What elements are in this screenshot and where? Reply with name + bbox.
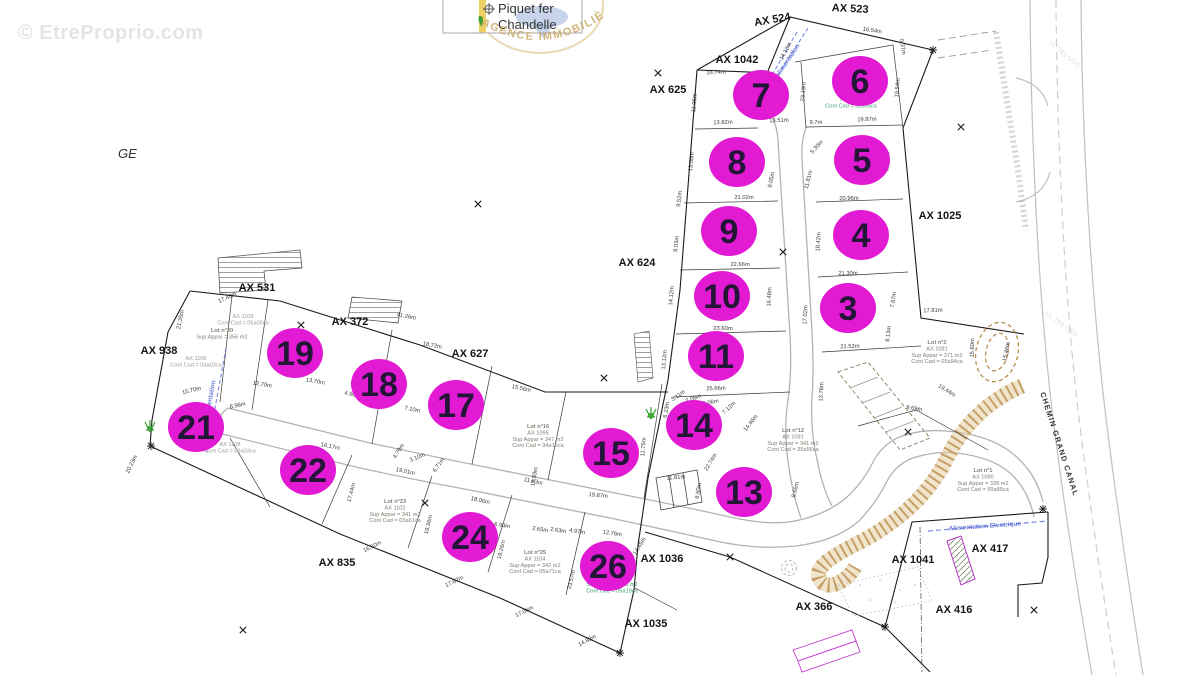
lot-marker-8: 8 bbox=[709, 137, 765, 187]
measurement-label: 19.36m bbox=[424, 514, 435, 534]
utility-note: Alimentation Electrique bbox=[948, 520, 1021, 532]
measurement-label: 22.66m bbox=[730, 262, 750, 268]
lot-marker-15: 15 bbox=[583, 428, 639, 478]
measurement-label: 14.46m bbox=[743, 414, 760, 433]
measurement-label: 12.76m bbox=[602, 530, 622, 539]
lot-number: 15 bbox=[592, 435, 630, 473]
parcel-label: AX 417 bbox=[972, 543, 1009, 555]
measurement-label: 11.81m bbox=[666, 474, 685, 481]
lot-marker-19: 19 bbox=[267, 328, 323, 378]
star-mark bbox=[881, 623, 889, 631]
measurement-label: 14.12m bbox=[668, 286, 676, 306]
lot-number: 8 bbox=[728, 144, 747, 182]
lot-number: 11 bbox=[698, 338, 734, 376]
measurement-label: 4.97m bbox=[569, 528, 586, 536]
measurement-label: 8.05m bbox=[767, 171, 776, 188]
measurement-label: 8.03m bbox=[673, 235, 681, 252]
measurement-label: 9.7m bbox=[809, 120, 822, 126]
x-mark bbox=[601, 375, 607, 381]
measurement-label: 5.30m bbox=[810, 139, 825, 155]
lot-number: 24 bbox=[451, 519, 489, 557]
parcel-label: AX 1042 bbox=[716, 54, 759, 66]
measurement-label: 13.05m bbox=[688, 152, 696, 172]
lot-marker-6: 6 bbox=[832, 56, 888, 106]
measurement-label: 20.23m bbox=[125, 454, 139, 474]
lot-number: 17 bbox=[437, 387, 475, 425]
measurement-label: 41.26m bbox=[396, 312, 416, 322]
star-mark bbox=[147, 442, 155, 450]
lot-info-block: Lot n°12AX 1091Sup Appar = 341 m2Cont Ca… bbox=[767, 428, 819, 453]
measurement-label: 17.81m bbox=[923, 308, 943, 315]
lot-number: 13 bbox=[725, 474, 763, 512]
lot-number: 6 bbox=[851, 63, 870, 101]
measurement-label: 23.57m bbox=[567, 569, 578, 589]
measurement-label: 17.44m bbox=[347, 482, 358, 502]
star-mark bbox=[1039, 505, 1047, 513]
measurement-label: 8.60m bbox=[695, 482, 704, 499]
measurement-label: 13.82m bbox=[713, 120, 733, 127]
measurement-label: 8.96m bbox=[229, 401, 246, 410]
lot-number: 22 bbox=[289, 452, 327, 490]
parcel-label: AX 372 bbox=[332, 316, 369, 328]
star-mark bbox=[929, 46, 937, 54]
strip-hatched bbox=[634, 331, 653, 382]
faint-label: VL 789 USS bbox=[1047, 40, 1082, 69]
measurement-label: 19.87m bbox=[588, 492, 608, 500]
lot-marker-10: 10 bbox=[694, 271, 750, 321]
lot-number: 18 bbox=[360, 366, 398, 404]
region-label: GE bbox=[118, 146, 137, 161]
road-name-label: CHEMIN GRAND CANAL bbox=[1038, 391, 1080, 498]
measurement-label: 15.60m bbox=[970, 338, 977, 358]
measurement-label: 23.19m bbox=[800, 82, 808, 102]
measurement-label: 25.66m bbox=[706, 386, 726, 393]
measurement-label: 21.35m bbox=[176, 310, 186, 330]
measurement-label: 8.66m bbox=[791, 481, 801, 498]
measurement-label: 16.74m bbox=[706, 70, 726, 77]
measurement-label: 2.63m bbox=[550, 527, 567, 535]
lot-number: 21 bbox=[177, 409, 215, 447]
lot-info-block: Lot n°20Sup Appar = 356 m2 bbox=[196, 328, 247, 340]
lot-marker-11: 11 bbox=[688, 331, 744, 381]
plan-screenshot: © EtreProprio.com Piquet fer Chandelle A… bbox=[0, 0, 1200, 675]
parcel-label: AX 938 bbox=[141, 345, 178, 357]
lot-marker-18: 18 bbox=[351, 359, 407, 409]
parcel-label: AX 625 bbox=[650, 84, 687, 96]
x-mark bbox=[1031, 607, 1037, 613]
x-mark bbox=[655, 70, 661, 76]
road-edge-band bbox=[996, 32, 1026, 230]
measurement-label: 4.79m bbox=[392, 443, 406, 460]
lot-number: 26 bbox=[589, 548, 627, 586]
lot-marker-3: 3 bbox=[820, 283, 876, 333]
measurement-label: 13.70m bbox=[305, 377, 325, 386]
parcel-label: AX 531 bbox=[239, 282, 276, 294]
measurement-label: 16.48m bbox=[766, 287, 773, 307]
tree-icon bbox=[646, 407, 656, 419]
measurement-label: 13.51m bbox=[769, 118, 789, 125]
parcel-label: AX 1025 bbox=[919, 210, 962, 222]
measurement-label: 20.96m bbox=[839, 196, 859, 202]
parcel-label: AX 835 bbox=[319, 557, 356, 569]
measurement-label: 11.75m bbox=[640, 437, 648, 457]
measurement-label: 13.78m bbox=[818, 382, 825, 402]
measurement-label: 19.44m bbox=[937, 383, 957, 398]
lot-info-block: Lot n°1AX 1080Sup Appar = 339 m2Cont Cad… bbox=[957, 468, 1009, 493]
curl-mark bbox=[782, 561, 797, 576]
parcel-label: AX 416 bbox=[936, 604, 973, 616]
dashed-ties bbox=[938, 31, 996, 58]
lot-marker-9: 9 bbox=[701, 206, 757, 256]
lot-marker-5: 5 bbox=[834, 135, 890, 185]
lot-info-block: AX 1109Cont Cad = 05a05ca bbox=[217, 314, 269, 326]
parcel-label: AX 627 bbox=[452, 348, 489, 360]
x-mark bbox=[958, 124, 964, 130]
lot-info-block: Lot n°16AX 1095Sup Appar = 347 m2Cont Ca… bbox=[512, 424, 564, 449]
measurement-label: 6.71m bbox=[432, 457, 446, 474]
lot-number: 19 bbox=[276, 335, 314, 373]
measurement-label: 15.46m bbox=[1002, 342, 1012, 362]
x-mark bbox=[475, 201, 481, 207]
lot-marker-24: 24 bbox=[442, 512, 498, 562]
measurement-label: 17.02m bbox=[802, 305, 809, 325]
measurement-label: 21.02m bbox=[734, 195, 754, 201]
lot-marker-22: 22 bbox=[280, 445, 336, 495]
measurement-label: 19.87m bbox=[857, 117, 877, 124]
lot-number: 4 bbox=[852, 217, 871, 255]
parcel-label: AX 1041 bbox=[892, 554, 935, 566]
measurement-label: 18.06m bbox=[470, 496, 490, 506]
measurement-label: 19.54m bbox=[894, 78, 902, 98]
measurement-label: 22.74m bbox=[703, 453, 718, 473]
basin-pond bbox=[970, 318, 1024, 385]
measurement-label: 13.12m bbox=[661, 350, 669, 370]
measurement-label: 7.10m bbox=[404, 405, 421, 414]
measurement-label: 7.67m bbox=[890, 291, 899, 308]
measurement-label: 21.52m bbox=[840, 344, 860, 351]
tree-icon bbox=[145, 420, 155, 432]
lot-marker-21: 21 bbox=[168, 402, 224, 452]
lot-marker-26: 26 bbox=[580, 541, 636, 591]
x-mark bbox=[727, 554, 733, 560]
lot-info-block: AX 1106Cont Cad = 03a03ca bbox=[170, 356, 222, 368]
lot-marker-4: 4 bbox=[833, 210, 889, 260]
measurement-label: 3.10m bbox=[409, 452, 426, 464]
measurement-label: 11.81m bbox=[804, 170, 814, 190]
x-mark bbox=[298, 322, 304, 328]
parcel-label: AX 1036 bbox=[641, 553, 684, 565]
lot-marker-17: 17 bbox=[428, 380, 484, 430]
parcel-label: AX 523 bbox=[832, 2, 869, 16]
measurement-label: 0.37m bbox=[898, 38, 907, 55]
parcel-label: AX 366 bbox=[796, 601, 833, 613]
measurement-label: 16.50m bbox=[363, 540, 383, 554]
lot-info-block: Lot n°25AX 1104Sup Appar = 342 m2Cont Ca… bbox=[509, 550, 561, 575]
lot-number: 9 bbox=[720, 213, 739, 251]
parcel-label: AX 1035 bbox=[625, 618, 668, 630]
x-mark bbox=[240, 627, 246, 633]
measurement-label: 18.42m bbox=[815, 232, 822, 252]
lot-number: 5 bbox=[853, 142, 872, 180]
parcel-label: AX 624 bbox=[619, 257, 657, 269]
public-road bbox=[1016, 0, 1143, 675]
lot-info-block: Lot n°2AX 1081Sup Appar = 371 m2Cont Cad… bbox=[911, 340, 963, 365]
lot-marker-14: 14 bbox=[666, 400, 722, 450]
lot-number: 10 bbox=[703, 278, 741, 316]
star-mark bbox=[616, 649, 624, 657]
measurement-label: 15.70m bbox=[182, 386, 202, 397]
lot-number: 3 bbox=[839, 290, 858, 328]
measurement-label: 19.26m bbox=[497, 539, 508, 559]
lot-marker-7: 7 bbox=[733, 70, 789, 120]
measurement-label: 9.52m bbox=[676, 190, 684, 207]
lot-number: 14 bbox=[675, 407, 713, 445]
measurement-label: 3.11m bbox=[670, 389, 686, 403]
measurement-label: 11.95m bbox=[691, 93, 699, 113]
measurement-label: 2.65m bbox=[532, 526, 549, 534]
measurement-label: 21.30m bbox=[838, 271, 858, 277]
measurement-label: 8.13m bbox=[885, 325, 893, 342]
lot-marker-13: 13 bbox=[716, 467, 772, 517]
lot-number: 7 bbox=[752, 77, 771, 115]
measurement-label: 7.12m bbox=[721, 401, 737, 416]
magenta-structure bbox=[793, 630, 860, 672]
faint-label: VL 789 USS bbox=[1043, 311, 1078, 339]
lot-info-block: Lot n°23AX 1102Sup Appar = 341 m2Cont Ca… bbox=[369, 499, 421, 524]
